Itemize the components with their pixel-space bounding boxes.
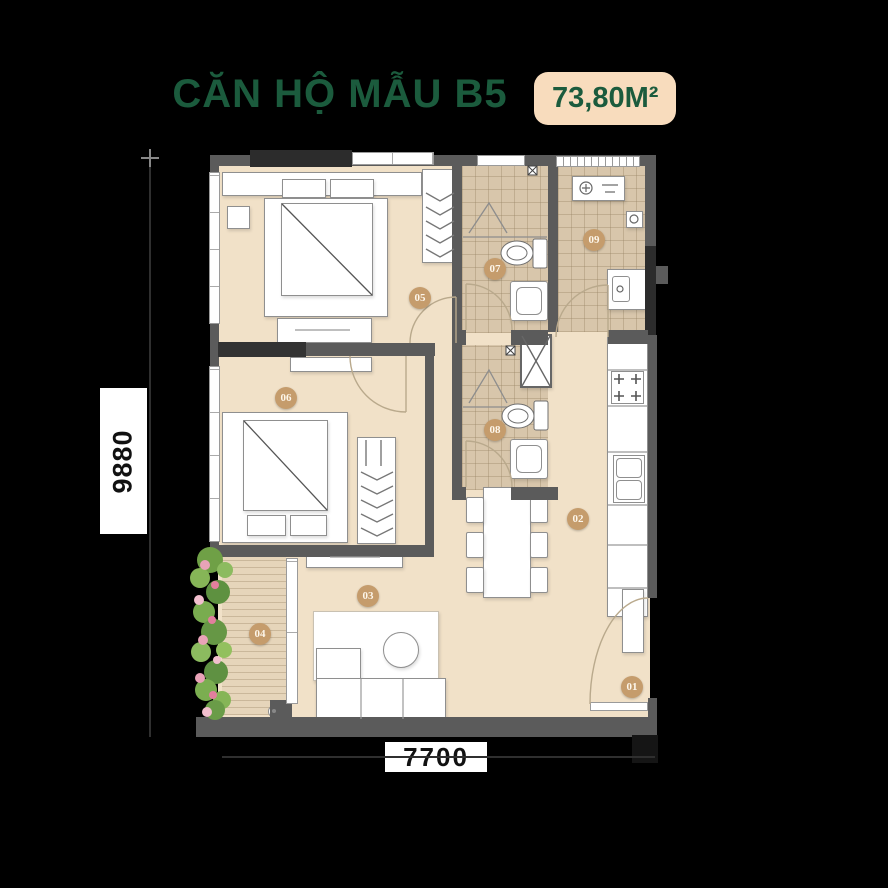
wall — [656, 266, 668, 284]
area-badge: 73,80M² — [534, 72, 676, 125]
wall — [511, 487, 558, 500]
wall — [548, 160, 558, 332]
wall — [608, 330, 648, 344]
room-badge-07: 07 — [484, 258, 506, 280]
sink-basin — [516, 445, 542, 473]
sink-basin — [616, 480, 642, 500]
room-badge-01: 01 — [621, 676, 643, 698]
pillow — [330, 179, 374, 198]
dining-chair — [466, 532, 484, 558]
wall — [648, 698, 657, 737]
dining-chair — [530, 532, 548, 558]
wall — [196, 717, 655, 737]
wall — [425, 356, 434, 557]
sink-basin — [616, 458, 642, 478]
room-badge-08: 08 — [484, 419, 506, 441]
room-badge-09: 09 — [583, 229, 605, 251]
bed-mattress-06 — [243, 420, 328, 511]
dimension-tick — [141, 149, 159, 167]
sofa — [316, 678, 446, 721]
stove — [611, 371, 644, 404]
wall — [511, 330, 548, 345]
coffee-table — [383, 632, 419, 668]
tv-unit-06 — [290, 357, 372, 372]
pillow — [282, 179, 326, 198]
window-bedroom-06 — [209, 366, 220, 542]
room-badge-05: 05 — [409, 287, 431, 309]
dimension-width: 7700 — [385, 742, 487, 772]
pillow — [247, 515, 286, 536]
wall — [648, 335, 657, 598]
dining-chair — [530, 567, 548, 593]
room-badge-04: 04 — [249, 623, 271, 645]
vent-box-09 — [626, 211, 643, 228]
balcony-slider-door — [286, 558, 298, 704]
dimension-height: 9880 — [100, 388, 147, 534]
wall-header — [645, 246, 656, 336]
bed-mattress-05 — [281, 203, 373, 296]
wall — [452, 330, 466, 345]
wall-header — [218, 342, 306, 357]
wall-header — [250, 150, 352, 167]
laundry-cabinet-09 — [572, 176, 625, 201]
page-title: CĂN HỘ MẪU B5 — [150, 72, 530, 117]
washer-door — [612, 276, 630, 302]
dining-chair — [466, 567, 484, 593]
entry-threshold — [590, 702, 648, 711]
room-badge-06: 06 — [275, 387, 297, 409]
floor-plan-page: CĂN HỘ MẪU B5 73,80M² 9880 7700 — [0, 0, 888, 888]
dining-chair — [530, 497, 548, 523]
dimension-width-value: 7700 — [403, 742, 469, 773]
nightstand — [227, 206, 250, 229]
window-bedroom-05 — [209, 172, 220, 324]
dimension-height-value: 9880 — [108, 429, 139, 493]
wall — [452, 344, 462, 495]
sink-basin — [516, 287, 542, 315]
window-top — [352, 152, 434, 165]
wall — [452, 487, 466, 500]
dining-chair — [466, 497, 484, 523]
wall-pier — [632, 735, 658, 763]
entry-door-leaf — [622, 589, 644, 653]
wardrobe-06 — [357, 437, 396, 544]
wall — [452, 165, 462, 343]
window-bathroom-07 — [477, 155, 525, 166]
wall-balcony — [218, 545, 430, 557]
pillow — [290, 515, 327, 536]
dining-table — [483, 487, 531, 598]
louver-grille-09 — [556, 156, 640, 167]
room-badge-03: 03 — [357, 585, 379, 607]
room-badge-02: 02 — [567, 508, 589, 530]
dresser-05 — [277, 318, 372, 343]
